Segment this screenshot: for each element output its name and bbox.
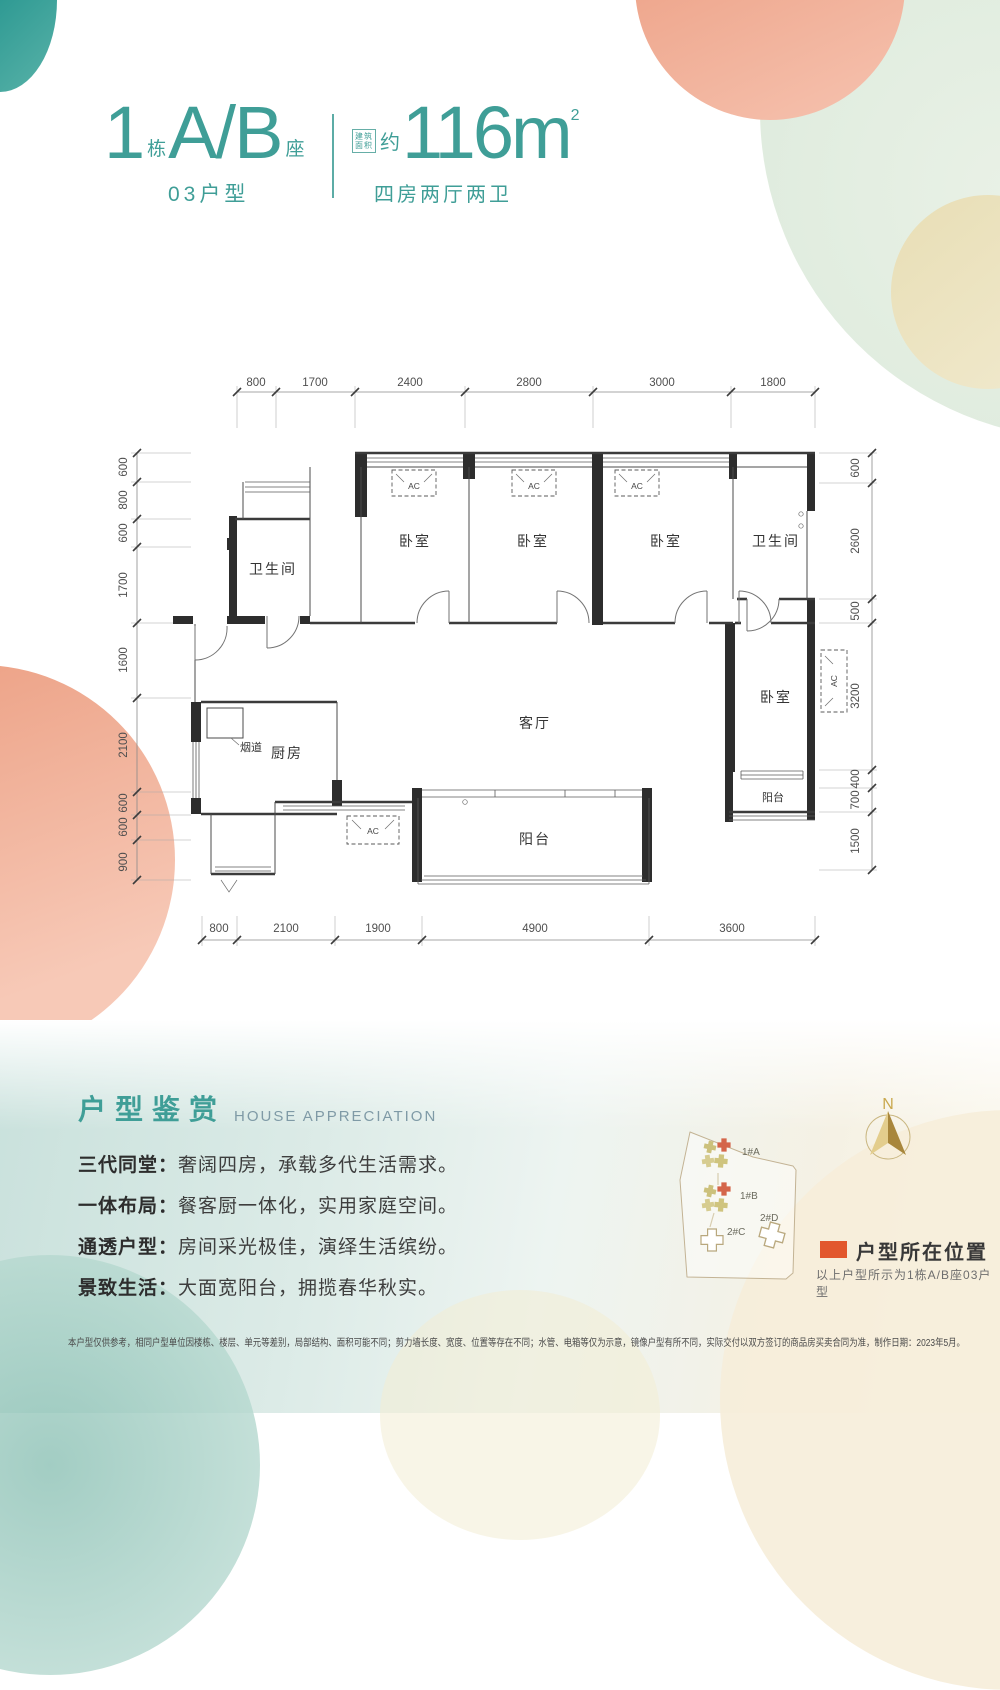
compass-n-label: N [882,1096,894,1113]
appreciation-title: 户型鉴赏 HOUSE APPRECIATION [78,1088,437,1128]
decor-corner-teal [0,0,57,92]
svg-text:500: 500 [850,601,862,620]
svg-text:AC: AC [631,481,643,491]
page: { "header": { "block_number": "1", "bloc… [0,0,1000,1413]
room-label-bedroom-4: 卧室 [760,689,792,705]
svg-text:2100: 2100 [273,923,299,935]
appreciation-point: 通透户型：房间采光极佳，演绎生活缤纷。 [78,1232,458,1259]
header-divider [332,114,334,198]
svg-text:2600: 2600 [850,528,862,554]
room-label-bedroom-1: 卧室 [399,533,431,549]
area-seal-line1: 建筑 [355,132,373,141]
svg-text:800: 800 [246,377,265,389]
svg-text:4900: 4900 [522,923,548,935]
appreciation-title-cn: 户型鉴赏 [78,1088,226,1128]
svg-text:AC: AC [408,481,420,491]
building-title: 1 栋 A/B 座 [104,100,306,165]
ac-unit-bedroom3: AC [615,470,659,496]
svg-text:800: 800 [118,490,130,509]
block-letters-unit: 座 [285,140,304,159]
appreciation-point: 景致生活：大面宽阳台，拥揽春华秋实。 [78,1273,458,1300]
compass-needle-right [888,1111,906,1155]
room-label-bath-left: 卫生间 [249,561,297,577]
block-letters: A/B [168,100,281,165]
room-label-flue: 烟道 [240,740,262,754]
svg-text:600: 600 [118,817,130,836]
svg-text:800: 800 [209,923,228,935]
block-number-unit: 栋 [147,140,166,159]
ac-unit-bedroom1: AC [392,470,436,496]
decor-circle-cream-mid [380,1290,660,1540]
svg-text:3200: 3200 [850,683,862,709]
building-label-c: 2#C [727,1227,745,1238]
appreciation-point: 一体布局：餐客厨一体化，实用家庭空间。 [78,1191,458,1218]
area-exponent: 2 [571,107,580,125]
svg-text:1700: 1700 [118,572,130,598]
room-label-living: 客厅 [519,715,551,731]
ac-unit-right: AC [821,650,847,712]
svg-text:2800: 2800 [516,377,542,389]
svg-text:2400: 2400 [397,377,423,389]
svg-text:3000: 3000 [649,377,675,389]
area-title: 建筑 面积 约 116m 2 [352,100,579,165]
svg-text:2100: 2100 [118,732,130,758]
room-label-balcony-side: 阳台 [762,790,784,804]
svg-text:900: 900 [118,852,130,871]
flue-box [207,708,243,745]
svg-text:600: 600 [118,793,130,812]
entry-arrow [221,880,237,892]
legend-note: 以上户型所示为1栋A/B座03户型 [816,1266,1000,1300]
dimension-chain-bottom: 800 2100 1900 4900 3600 [198,916,819,946]
svg-text:1600: 1600 [118,647,130,673]
ac-unit-bottom: AC [347,816,399,844]
area-value: 116m [402,100,570,165]
svg-text:1800: 1800 [760,377,786,389]
svg-text:1900: 1900 [365,923,391,935]
svg-text:600: 600 [850,458,862,477]
svg-text:1700: 1700 [302,377,328,389]
area-seal: 建筑 面积 [352,129,376,153]
svg-text:AC: AC [829,675,839,687]
room-label-kitchen: 厨房 [271,745,303,761]
building-label-a: 1#A [742,1147,760,1158]
ac-unit-bedroom2: AC [512,470,556,496]
disclaimer-text: 本户型仅供参考，相同户型单位因楼栋、楼层、单元等差别，局部结构、面积可能不同；剪… [68,1334,965,1349]
site-boundary [680,1132,796,1279]
room-label-bedroom-3: 卧室 [650,533,682,549]
svg-text:600: 600 [118,457,130,476]
room-label-bath-right: 卫生间 [752,533,800,549]
area-seal-line2: 面积 [355,141,373,150]
doors [195,591,779,892]
dimension-chain-top: 800 1700 2400 2800 3000 1800 [233,377,819,428]
floorplan: 800 1700 2400 2800 3000 1800 800 2100 19… [115,350,915,995]
legend-label: 户型所在位置 [856,1236,988,1265]
appreciation-title-en: HOUSE APPRECIATION [234,1108,437,1125]
unit-type: 03户型 [168,178,249,208]
building-label-b: 1#B [740,1191,758,1202]
compass-needle-left [870,1111,888,1155]
room-label-balcony-main: 阳台 [519,831,551,847]
room-label-bedroom-2: 卧室 [517,533,549,549]
svg-text:400: 400 [850,769,862,788]
svg-text:700: 700 [850,790,862,809]
compass: N [866,1096,910,1159]
svg-text:1500: 1500 [850,828,862,854]
walls [173,453,815,882]
appreciation-points: 三代同堂：奢阔四房，承载多代生活需求。 一体布局：餐客厨一体化，实用家庭空间。 … [78,1150,458,1314]
windows [193,458,815,884]
dimension-chain-left: 600 800 600 1700 1600 2100 600 600 900 [118,449,191,884]
area-approx: 约 [380,126,400,155]
svg-text:600: 600 [118,523,130,542]
svg-text:AC: AC [367,826,379,836]
svg-text:AC: AC [528,481,540,491]
block-number: 1 [104,100,143,165]
legend-swatch [820,1241,847,1258]
building-label-d: 2#D [760,1213,778,1224]
layout-description: 四房两厅两卫 [374,178,512,207]
appreciation-point: 三代同堂：奢阔四房，承载多代生活需求。 [78,1150,458,1177]
svg-text:3600: 3600 [719,923,745,935]
room-labels: 卧室 卧室 卧室 卫生间 卫生间 卧室 客厅 厨房 烟道 阳台 阳台 [240,533,800,847]
